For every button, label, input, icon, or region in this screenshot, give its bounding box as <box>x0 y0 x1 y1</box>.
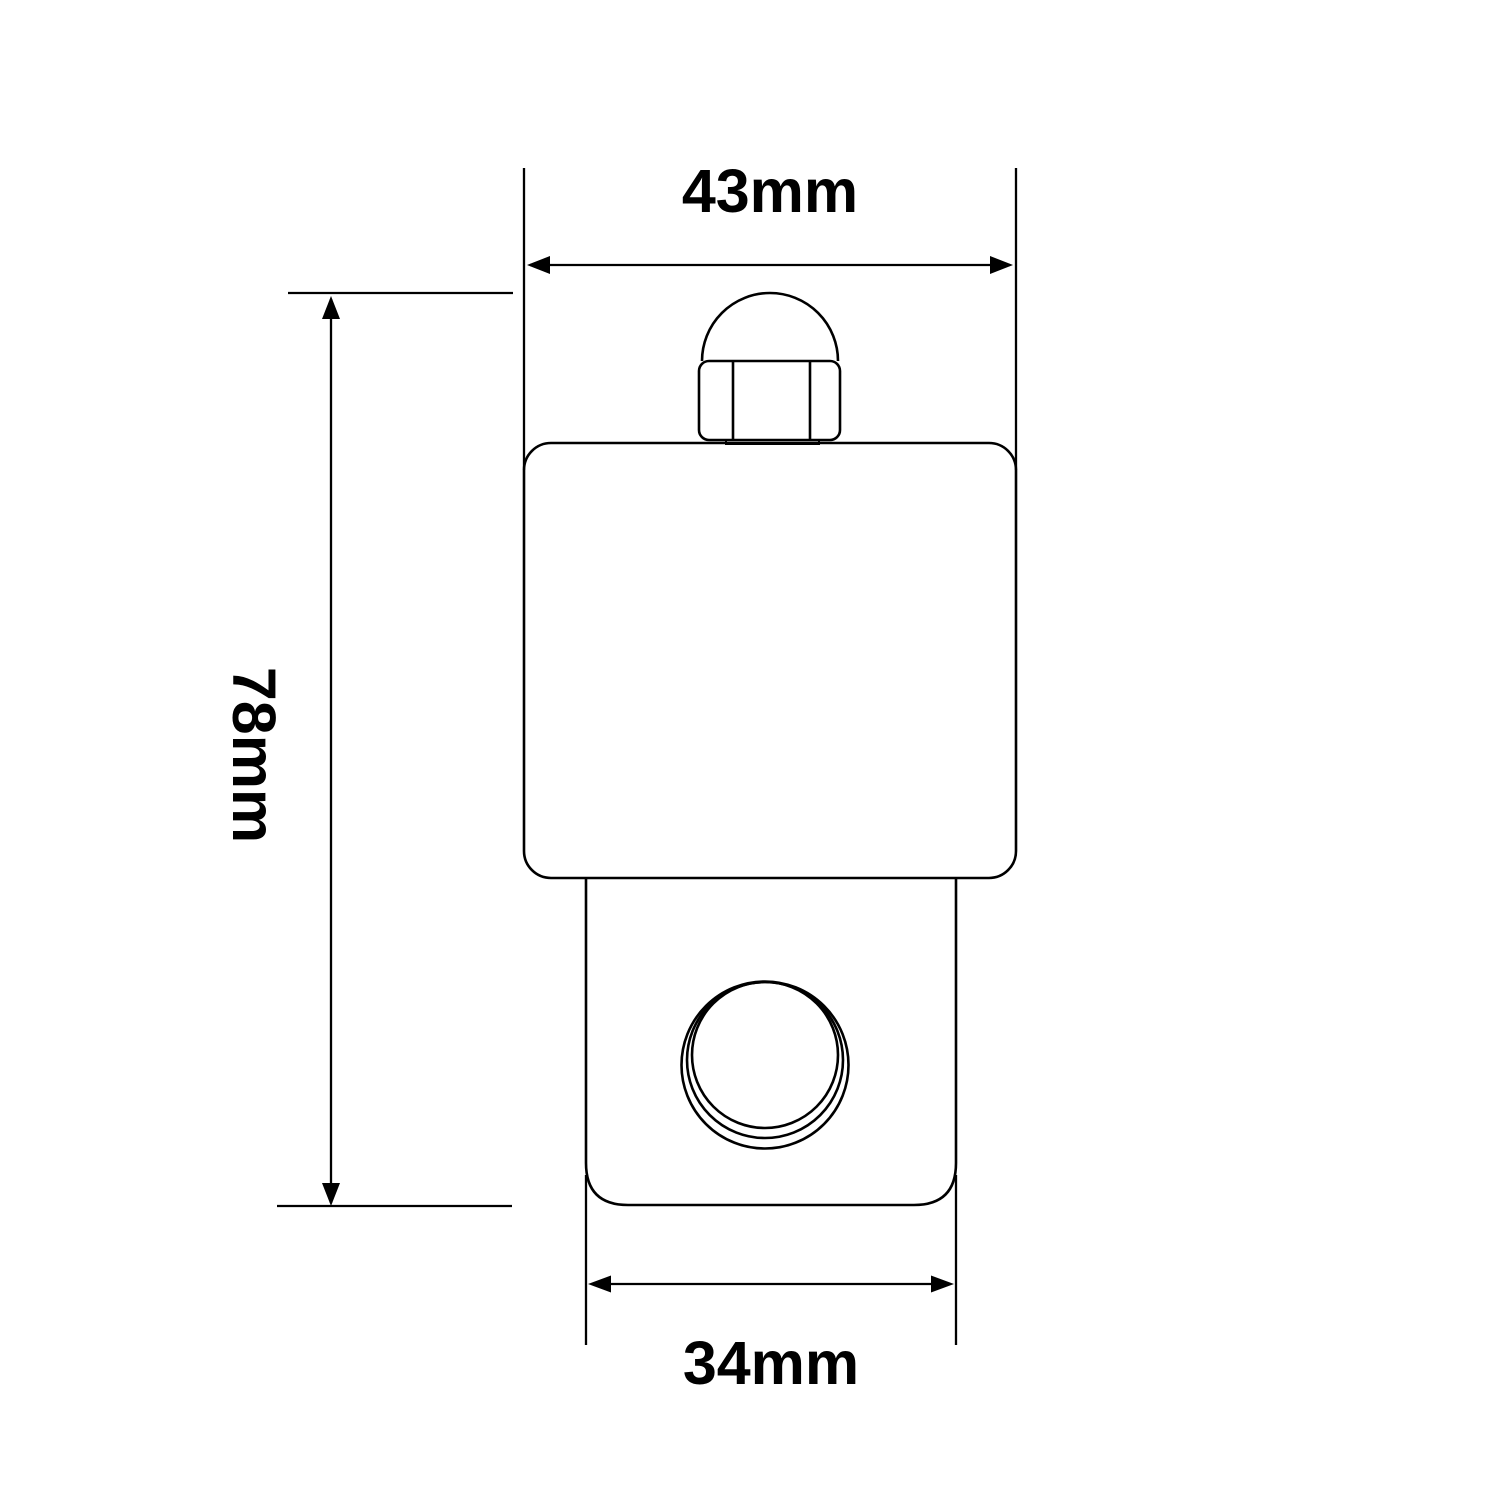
arrowhead-height-top <box>322 296 340 319</box>
dimension-left-height: 78mm <box>220 293 513 1206</box>
top-width-label: 43mm <box>682 157 858 225</box>
arrowhead-bottom-right <box>931 1276 954 1293</box>
product-outline <box>524 293 1016 1205</box>
left-height-label: 78mm <box>220 667 288 843</box>
valve-body <box>586 878 956 1205</box>
technical-drawing-page: 43mm 78mm 34mm <box>0 0 1500 1500</box>
cap-nut <box>699 361 840 440</box>
bottom-width-label: 34mm <box>683 1329 859 1397</box>
coil-body <box>524 443 1016 878</box>
dimension-bottom-width: 34mm <box>586 1175 956 1397</box>
valve-dimension-diagram: 43mm 78mm 34mm <box>0 0 1500 1500</box>
arrowhead-bottom-left <box>588 1276 611 1293</box>
cap-dome <box>702 293 838 361</box>
port-ring-inner <box>692 982 838 1128</box>
arrowhead-height-bottom <box>322 1183 340 1206</box>
dimension-top-width: 43mm <box>524 157 1016 470</box>
arrowhead-top-right <box>990 256 1013 274</box>
arrowhead-top-left <box>527 256 550 274</box>
